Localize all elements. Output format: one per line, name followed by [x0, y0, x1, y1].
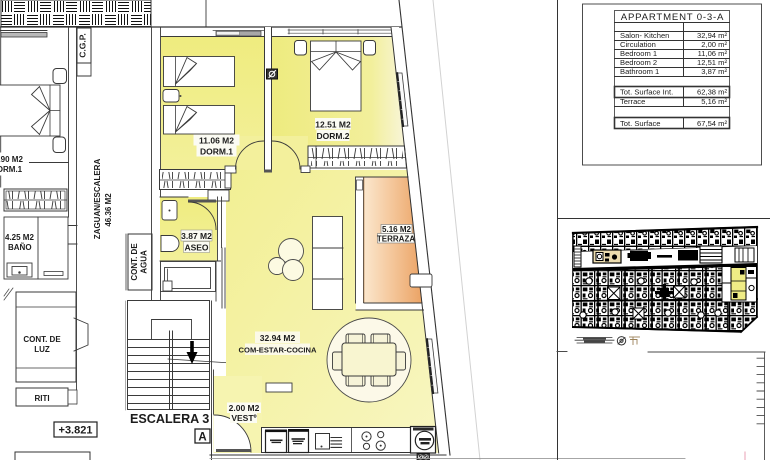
svg-text:ESCALERA 3: ESCALERA 3	[130, 412, 209, 426]
svg-text:ZAGUAN/ESCALERA: ZAGUAN/ESCALERA	[93, 159, 102, 240]
svg-text:3,87 m²: 3,87 m²	[701, 67, 727, 76]
svg-text:5,16 m²: 5,16 m²	[701, 97, 727, 106]
svg-text:12.51 M2: 12.51 M2	[315, 120, 351, 130]
svg-text:RITI: RITI	[34, 394, 49, 403]
svg-text:32.94 M2: 32.94 M2	[260, 333, 296, 343]
svg-text:32,94 m²: 32,94 m²	[697, 31, 727, 40]
svg-text:2,00 m²: 2,00 m²	[701, 40, 727, 49]
svg-text:12,51 m²: 12,51 m²	[697, 58, 727, 67]
svg-text:TERRAZA: TERRAZA	[377, 235, 415, 244]
svg-text:3.87 M2: 3.87 M2	[181, 231, 212, 241]
svg-text:AGUA: AGUA	[140, 250, 149, 274]
svg-text:VESTº: VESTº	[231, 413, 256, 423]
svg-text:46.36 M2: 46.36 M2	[104, 193, 113, 227]
svg-text:5.16 M2: 5.16 M2	[382, 225, 411, 234]
svg-text:62,38 m²: 62,38 m²	[697, 88, 727, 97]
svg-text:11.06 M2: 11.06 M2	[199, 136, 234, 146]
svg-text:Circulation: Circulation	[620, 40, 656, 49]
svg-text:ASEO: ASEO	[184, 243, 208, 253]
svg-text:DORM.1: DORM.1	[0, 165, 23, 174]
svg-text:Tot. Surface Int.: Tot. Surface Int.	[620, 88, 673, 97]
svg-text:Bathroom 1: Bathroom 1	[620, 67, 659, 76]
svg-text:Bedroom 1: Bedroom 1	[620, 49, 657, 58]
svg-text:2.00 M2: 2.00 M2	[229, 403, 260, 413]
svg-text:Bedroom 2: Bedroom 2	[620, 58, 657, 67]
svg-text:4.25 M2: 4.25 M2	[5, 233, 34, 242]
svg-text:DORM.2: DORM.2	[316, 131, 349, 141]
svg-text:A: A	[198, 432, 206, 444]
svg-text:BAÑO: BAÑO	[8, 243, 32, 252]
svg-text:C.G.P.: C.G.P.	[78, 33, 88, 57]
svg-text:Tot. Surface: Tot. Surface	[620, 119, 661, 128]
svg-text:DORM.1: DORM.1	[200, 147, 233, 157]
svg-text:0.90 M2: 0.90 M2	[0, 155, 23, 164]
svg-text:Salon- Kitchen: Salon- Kitchen	[620, 31, 669, 40]
svg-text:APPARTMENT 0-3-A: APPARTMENT 0-3-A	[621, 12, 724, 23]
svg-text:11,06 m²: 11,06 m²	[698, 49, 728, 58]
svg-text:LUZ: LUZ	[34, 345, 50, 354]
svg-text:CONT. DE: CONT. DE	[23, 335, 61, 344]
svg-text:Terrace: Terrace	[620, 97, 645, 106]
svg-text:+3.821: +3.821	[59, 425, 93, 437]
svg-text:COM-ESTAR-COCINA: COM-ESTAR-COCINA	[239, 346, 317, 355]
svg-text:CONT. DE: CONT. DE	[130, 243, 139, 281]
svg-text:67,54 m²: 67,54 m²	[697, 119, 727, 128]
